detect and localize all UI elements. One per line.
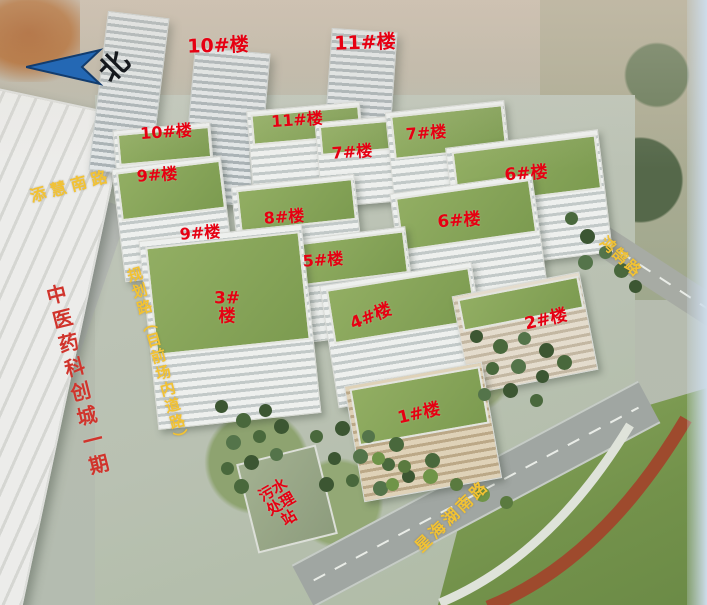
road-label-honghu: 鸿鹄路 [597, 234, 645, 281]
building-label-8: 8#楼 [263, 207, 305, 227]
area-label-phase1: 中医药科创城一期 [41, 282, 110, 481]
aerial-site-plan: 北 10#楼11#楼10#楼11#楼7#楼7#楼9#楼6#楼8#楼6#楼9#楼5… [0, 0, 707, 605]
road-label-xinghai-lake-south: 星海湖南路 [412, 477, 492, 555]
road-label-planning: 规划路（目前场内道路） [124, 265, 191, 449]
building-label-10-mid: 10#楼 [140, 122, 193, 143]
building-label-6-upper: 6#楼 [504, 163, 548, 184]
building-label-7-right: 7#楼 [405, 123, 447, 143]
building-label-6-lower: 6#楼 [437, 210, 481, 231]
building-label-3: 3#楼 [214, 290, 240, 327]
building-label-11-top: 11#楼 [334, 32, 396, 55]
building-label-1: 1#楼 [396, 400, 442, 428]
building-label-11-mid: 11#楼 [271, 110, 324, 131]
facility-label-sewage-station: 污水处理站 [256, 475, 306, 532]
building-label-10-top: 10#楼 [187, 35, 249, 58]
road-label-tianhui-south: 添慧南路 [28, 167, 114, 205]
building-label-9-lower: 9#楼 [179, 223, 221, 243]
building-label-5: 5#楼 [302, 250, 344, 270]
building-label-9-upper: 9#楼 [136, 165, 178, 185]
building-label-7-left: 7#楼 [331, 142, 373, 162]
building-label-4: 4#楼 [348, 300, 395, 333]
building-label-2: 2#楼 [523, 306, 569, 334]
annotation-layer: 10#楼11#楼10#楼11#楼7#楼7#楼9#楼6#楼8#楼6#楼9#楼5#楼… [0, 0, 707, 605]
